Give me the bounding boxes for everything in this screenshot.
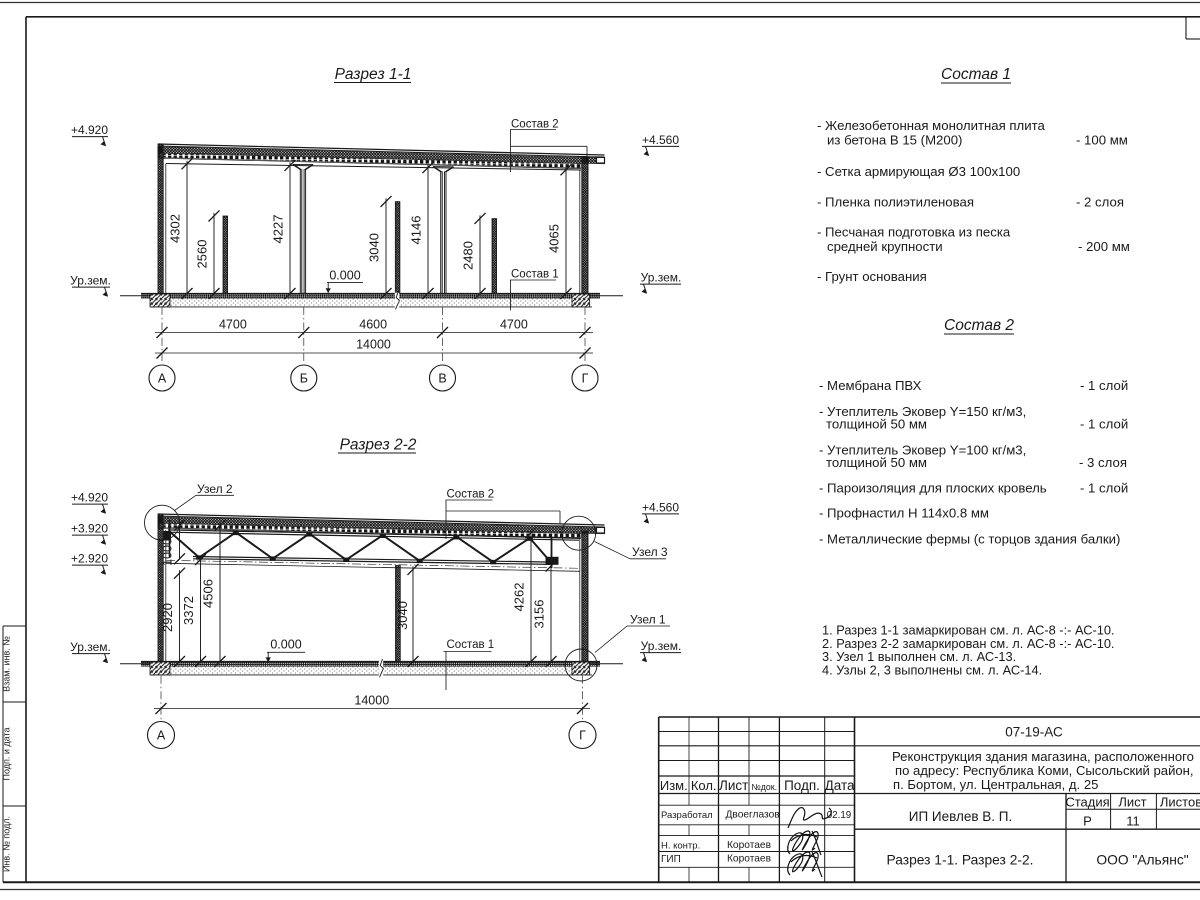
svg-text:Узел 1: Узел 1 (630, 613, 666, 627)
svg-text:14000: 14000 (354, 694, 389, 708)
svg-text:Лист: Лист (719, 778, 748, 793)
svg-text:- 3 слоя: - 3 слоя (1079, 455, 1127, 470)
svg-text:- Песчаная подготовка из песка: - Песчаная подготовка из песка (817, 225, 1011, 240)
svg-text:Р: Р (1083, 814, 1092, 829)
svg-text:Разрез 1-1: Разрез 1-1 (335, 66, 412, 83)
svg-text:Стадия: Стадия (1065, 795, 1109, 810)
svg-text:толщиной 50 мм: толщиной 50 мм (826, 417, 927, 432)
svg-text:Разработал: Разработал (661, 810, 713, 821)
svg-text:Ур.зем.: Ур.зем. (70, 640, 111, 654)
svg-text:3040: 3040 (367, 233, 382, 262)
svg-text:3040: 3040 (395, 601, 410, 630)
svg-text:№док.: №док. (751, 782, 777, 792)
svg-text:- Пароизоляция для плоских кро: - Пароизоляция для плоских кровель (819, 481, 1047, 496)
svg-text:Подп.: Подп. (784, 778, 820, 793)
svg-text:4227: 4227 (271, 215, 286, 244)
svg-text:Двоеглазов: Двоеглазов (726, 810, 780, 821)
svg-text:- Пленка полиэтиленовая: - Пленка полиэтиленовая (817, 195, 974, 210)
svg-text:Состав 1: Состав 1 (511, 269, 559, 281)
svg-text:- Профнастил Н 114х0.8 мм: - Профнастил Н 114х0.8 мм (819, 506, 989, 521)
svg-text:Лист: Лист (1118, 795, 1146, 810)
svg-text:Реконструкция здания магазина,: Реконструкция здания магазина, расположе… (892, 749, 1194, 764)
svg-text:+2.920: +2.920 (71, 552, 108, 566)
svg-text:07-19-АС: 07-19-АС (1005, 725, 1063, 740)
svg-text:В: В (438, 372, 446, 386)
svg-text:4506: 4506 (201, 579, 216, 608)
svg-text:+4.560: +4.560 (642, 133, 679, 147)
svg-text:Взам. инв. №: Взам. инв. № (2, 636, 12, 692)
svg-text:Состав 2: Состав 2 (511, 119, 559, 131)
svg-text:2920: 2920 (160, 603, 175, 632)
svg-text:Г: Г (582, 372, 589, 386)
svg-text:Б: Б (300, 372, 308, 386)
svg-text:по адресу: Республика Коми, Сы: по адресу: Республика Коми, Сысольский р… (895, 763, 1194, 778)
svg-text:из бетона В 15 (М200): из бетона В 15 (М200) (827, 133, 962, 148)
svg-text:Листов: Листов (1160, 795, 1200, 810)
svg-text:средней крупности: средней крупности (827, 239, 943, 254)
svg-text:Состав 1: Состав 1 (447, 639, 495, 651)
svg-text:1000: 1000 (161, 538, 175, 566)
svg-text:4700: 4700 (219, 318, 247, 332)
svg-text:Ур.зем.: Ур.зем. (641, 271, 682, 285)
svg-text:Состав 2: Состав 2 (944, 317, 1014, 334)
svg-text:- Сетка армирующая Ø3 100х100: - Сетка армирующая Ø3 100х100 (817, 164, 1020, 179)
svg-text:4600: 4600 (359, 318, 387, 332)
svg-text:- Мембрана ПВХ: - Мембрана ПВХ (819, 378, 922, 393)
svg-text:- 2 слоя: - 2 слоя (1076, 195, 1124, 210)
svg-text:Подп. и дата: Подп. и дата (2, 727, 12, 780)
svg-text:Изм.: Изм. (660, 778, 688, 793)
svg-text:А: А (157, 729, 166, 743)
svg-text:Ур.зем.: Ур.зем. (641, 639, 682, 653)
svg-text:- 1 слой: - 1 слой (1080, 378, 1128, 393)
svg-text:Н. контр.: Н. контр. (661, 841, 700, 852)
svg-text:4. Узлы 2, 3 выполнены см. л.: 4. Узлы 2, 3 выполнены см. л. АС-14. (822, 663, 1042, 678)
svg-text:А: А (158, 372, 167, 386)
svg-text:0.000: 0.000 (270, 638, 301, 652)
svg-text:Разрез 1-1. Разрез 2-2.: Разрез 1-1. Разрез 2-2. (887, 853, 1034, 868)
svg-text:Узел 2: Узел 2 (197, 482, 233, 496)
svg-text:Инв. № подл.: Инв. № подл. (2, 816, 12, 872)
svg-text:Ур.зем.: Ур.зем. (70, 274, 111, 288)
svg-text:+4.920: +4.920 (71, 123, 108, 137)
svg-text:14000: 14000 (356, 338, 391, 352)
svg-text:ООО "Альянс": ООО "Альянс" (1096, 853, 1188, 868)
svg-text:2480: 2480 (461, 241, 476, 270)
svg-text:Кол.: Кол. (691, 778, 717, 793)
svg-text:Узел 3: Узел 3 (632, 545, 668, 559)
svg-text:- Металлические фермы (с торцо: - Металлические фермы (с торцов здания б… (819, 532, 1120, 547)
svg-text:3156: 3156 (532, 600, 547, 629)
svg-text:11: 11 (1126, 814, 1140, 829)
svg-text:- 1 слой: - 1 слой (1080, 481, 1128, 496)
svg-text:Дата: Дата (825, 778, 855, 793)
svg-text:4262: 4262 (512, 583, 527, 612)
svg-text:- Железобетонная монолитная п: - Железобетонная монолитная плита (817, 118, 1046, 133)
svg-text:Г: Г (579, 729, 586, 743)
svg-text:Разрез 2-2: Разрез 2-2 (340, 437, 417, 454)
svg-text:- 100 мм: - 100 мм (1076, 133, 1128, 148)
svg-text:Состав 2: Состав 2 (447, 489, 495, 501)
svg-text:4065: 4065 (547, 224, 562, 253)
svg-text:+4.560: +4.560 (642, 500, 679, 514)
svg-text:4146: 4146 (409, 216, 424, 245)
svg-text:- 1 слой: - 1 слой (1080, 417, 1128, 432)
svg-text:Коротаев: Коротаев (727, 840, 771, 851)
svg-text:п. Бортом, ул. Центральная, д.: п. Бортом, ул. Центральная, д. 25 (893, 777, 1098, 792)
svg-text:+4.920: +4.920 (71, 491, 108, 505)
svg-text:ИП Иевлев В. П.: ИП Иевлев В. П. (909, 809, 1013, 824)
svg-text:4302: 4302 (168, 214, 183, 243)
svg-text:- 200 мм: - 200 мм (1078, 239, 1130, 254)
svg-text:Коротаев: Коротаев (727, 854, 771, 865)
svg-text:толщиной 50 мм: толщиной 50 мм (826, 455, 927, 470)
svg-text:3372: 3372 (181, 596, 196, 625)
svg-text:0.000: 0.000 (329, 269, 360, 283)
svg-text:4700: 4700 (500, 318, 528, 332)
svg-text:ГИП: ГИП (661, 854, 681, 865)
svg-text:- Грунт основания: - Грунт основания (817, 269, 927, 284)
svg-text:2560: 2560 (195, 240, 210, 269)
svg-text:+3.920: +3.920 (71, 522, 108, 536)
svg-text:Состав 1: Состав 1 (941, 66, 1011, 83)
